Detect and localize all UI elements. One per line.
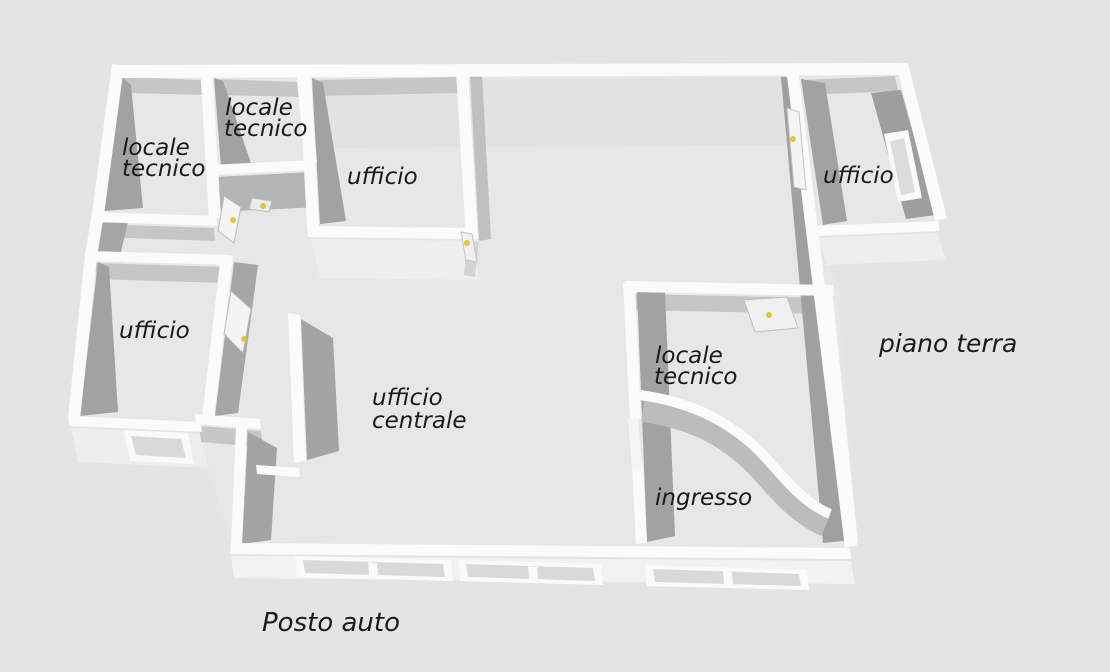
- room-label-ufficio-east: ufficio: [823, 163, 894, 189]
- door-handle-icon: [241, 336, 247, 342]
- wall-face-dark: [242, 432, 277, 544]
- wall-top: [307, 226, 472, 239]
- wall-face-mid: [314, 77, 458, 96]
- floor-level-label: piano terra: [878, 329, 1017, 358]
- window-mullion: [528, 566, 538, 580]
- room-label-locale-tecnico-e: tecnico: [654, 364, 738, 390]
- floor-plan-stage: locale tecnico locale tecnico ufficio uf…: [0, 0, 1110, 672]
- door-handle-icon: [790, 136, 796, 142]
- room-label-locale-tecnico-n: tecnico: [224, 116, 308, 142]
- room-label-ufficio-west: ufficio: [119, 318, 190, 344]
- window-pane: [131, 436, 186, 458]
- room-label-locale-tecnico-nw: tecnico: [122, 156, 206, 182]
- door-handle-icon: [230, 217, 236, 223]
- wall-face-light: [311, 239, 480, 280]
- outside-area-label: Posto auto: [262, 608, 400, 638]
- door-handle-icon: [766, 312, 772, 318]
- wall-face-mid: [123, 77, 204, 95]
- room-label-ufficio-centrale: centrale: [372, 408, 466, 434]
- floor-plan-canvas: locale tecnico locale tecnico ufficio uf…: [0, 0, 1110, 672]
- door-handle-icon: [260, 203, 266, 209]
- window-mullion: [723, 571, 733, 585]
- wall-face-light: [818, 233, 946, 265]
- room-label-ufficio-north: ufficio: [347, 164, 418, 190]
- window-mullion: [368, 562, 378, 576]
- door-handle-icon: [464, 240, 470, 246]
- room-label-ingresso: ingresso: [655, 485, 752, 511]
